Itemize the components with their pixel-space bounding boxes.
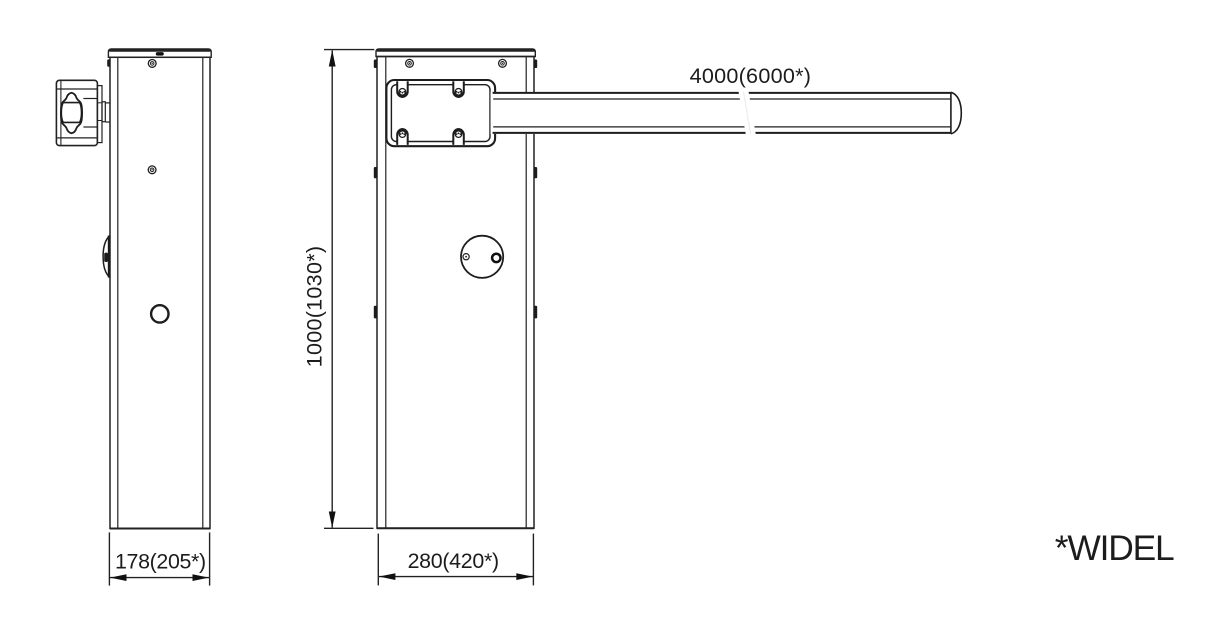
svg-text:1000(1030*): 1000(1030*) — [301, 246, 326, 368]
svg-text:4000(6000*): 4000(6000*) — [690, 63, 812, 88]
svg-text:280(420*): 280(420*) — [408, 549, 499, 573]
svg-text:*WIDEL: *WIDEL — [1055, 528, 1174, 568]
svg-text:178(205*): 178(205*) — [115, 549, 206, 573]
